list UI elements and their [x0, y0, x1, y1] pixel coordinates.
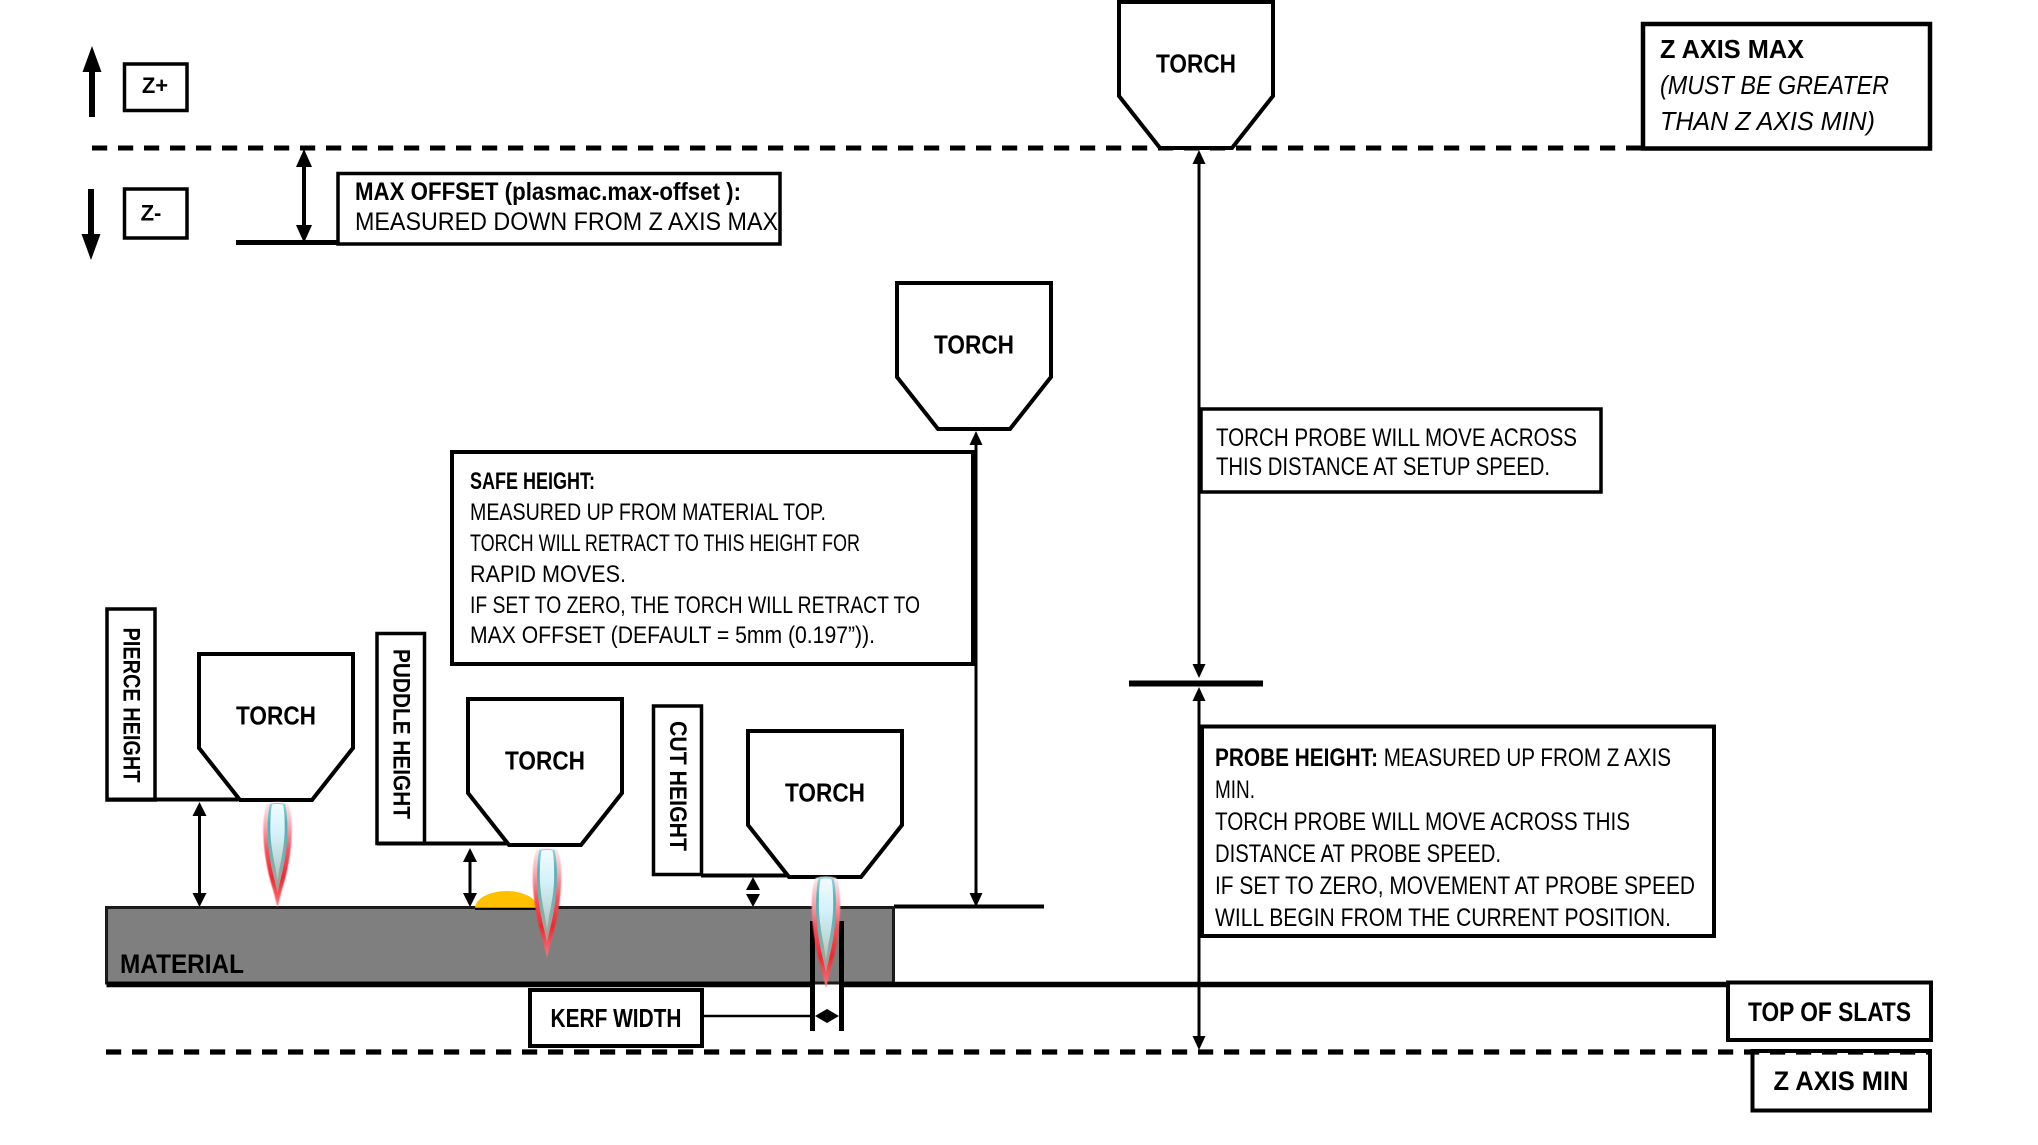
svg-text:CUT HEIGHT: CUT HEIGHT — [664, 721, 691, 851]
svg-text:WILL BEGIN FROM THE CURRENT PO: WILL BEGIN FROM THE CURRENT POSITION. — [1215, 904, 1671, 932]
svg-text:TORCH PROBE WILL MOVE ACROSS: TORCH PROBE WILL MOVE ACROSS — [1216, 424, 1577, 452]
svg-text:THAN Z AXIS MIN): THAN Z AXIS MIN) — [1660, 106, 1875, 136]
svg-text:(MUST BE GREATER: (MUST BE GREATER — [1660, 70, 1889, 100]
svg-text:Z-: Z- — [141, 201, 162, 226]
svg-text:Z AXIS MAX: Z AXIS MAX — [1660, 34, 1805, 64]
svg-text:RAPID MOVES.: RAPID MOVES. — [470, 561, 626, 588]
svg-text:IF SET TO ZERO, MOVEMENT AT P: IF SET TO ZERO, MOVEMENT AT PROBE SPEED — [1215, 872, 1695, 900]
svg-text:TOP OF SLATS: TOP OF SLATS — [1748, 997, 1911, 1027]
svg-text:DISTANCE AT PROBE SPEED.: DISTANCE AT PROBE SPEED. — [1215, 840, 1501, 868]
svg-text:Z+: Z+ — [142, 73, 168, 98]
svg-text:IF SET TO ZERO, THE TORCH WILL: IF SET TO ZERO, THE TORCH WILL RETRACT T… — [470, 592, 920, 619]
svg-text:Z AXIS MIN: Z AXIS MIN — [1774, 1066, 1909, 1096]
svg-text:TORCH PROBE WILL MOVE ACROSS T: TORCH PROBE WILL MOVE ACROSS THIS — [1215, 808, 1630, 836]
svg-text:PROBE HEIGHT: MEASURED UP FROM: PROBE HEIGHT: MEASURED UP FROM Z AXIS — [1215, 744, 1671, 772]
svg-text:PUDDLE HEIGHT: PUDDLE HEIGHT — [388, 649, 415, 819]
svg-text:THIS DISTANCE AT SETUP SPEED.: THIS DISTANCE AT SETUP SPEED. — [1216, 453, 1550, 481]
svg-text:MEASURED DOWN FROM Z AXIS MAX: MEASURED DOWN FROM Z AXIS MAX — [355, 208, 778, 236]
svg-text:MAX OFFSET (plasmac.max-offset: MAX OFFSET (plasmac.max-offset ): — [355, 178, 741, 206]
svg-text:PIERCE HEIGHT: PIERCE HEIGHT — [118, 628, 145, 783]
svg-text:MATERIAL: MATERIAL — [120, 949, 244, 979]
svg-text:TORCH WILL RETRACT TO THIS HEI: TORCH WILL RETRACT TO THIS HEIGHT FOR — [470, 530, 860, 557]
svg-text:SAFE HEIGHT:: SAFE HEIGHT: — [470, 468, 595, 495]
svg-text:MIN.: MIN. — [1215, 776, 1255, 804]
svg-text:MEASURED UP FROM MATERIAL TOP.: MEASURED UP FROM MATERIAL TOP. — [470, 499, 826, 526]
svg-text:KERF WIDTH: KERF WIDTH — [551, 1003, 682, 1033]
svg-text:MAX OFFSET (DEFAULT = 5mm (0.1: MAX OFFSET (DEFAULT = 5mm (0.197”)). — [470, 622, 875, 649]
